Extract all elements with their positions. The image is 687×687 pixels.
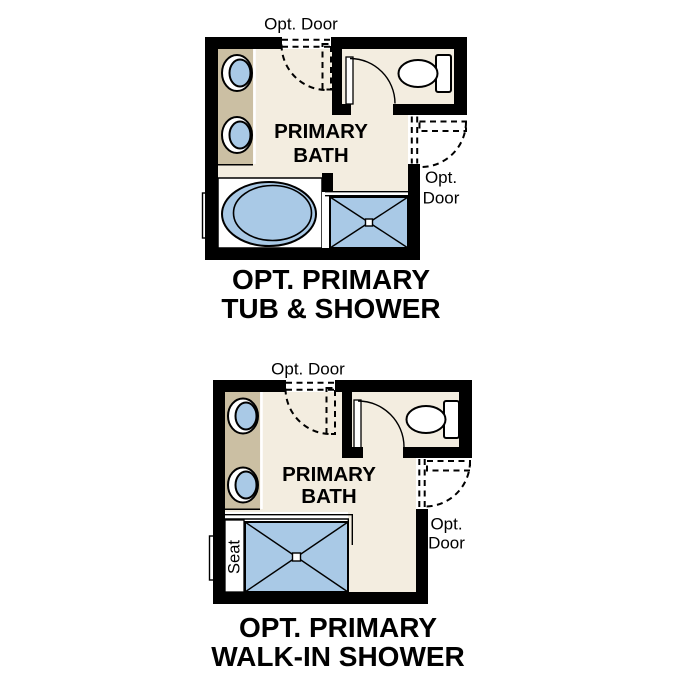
door-swing-arc-dashed <box>421 122 466 167</box>
plan-title-line2: TUB & SHOWER <box>221 293 440 324</box>
bathtub <box>218 178 322 248</box>
floor-plan-tub-shower: Opt. Door PRIMARY BATH Opt. Door OPT. PR… <box>203 15 468 325</box>
walk-in-shower-pan <box>225 512 352 592</box>
plan-title-line1: OPT. PRIMARY <box>232 264 430 295</box>
tub-basin <box>222 182 316 246</box>
door-panel <box>346 57 353 104</box>
plan-title-line1: OPT. PRIMARY <box>239 612 437 643</box>
opt-door-label-side-line2: Door <box>423 189 460 208</box>
door-panel-dashed <box>420 122 467 132</box>
room-label-line2: BATH <box>293 144 348 167</box>
opt-door-label-side-line1: Opt. <box>430 515 462 534</box>
sink-icon <box>228 399 258 434</box>
vanity-with-two-sinks <box>218 49 255 165</box>
sink-icon <box>228 468 258 503</box>
floor-plan-walk-in-shower: Opt. Door PRIMARY BATH Opt. Door Seat OP… <box>210 360 473 673</box>
opt-door-label-side-line2: Door <box>428 534 465 553</box>
door-swing-arc-dashed <box>425 462 470 507</box>
floor-plan-sheet: Opt. Door PRIMARY BATH Opt. Door OPT. PR… <box>0 0 687 687</box>
toilet-bowl <box>399 60 438 87</box>
door-panel-dashed <box>427 461 470 471</box>
room-label-line2: BATH <box>301 485 356 508</box>
seat-label: Seat <box>226 540 244 574</box>
optional-side-door <box>412 117 466 168</box>
door-panel <box>354 400 361 448</box>
shower-drain <box>293 553 301 561</box>
opt-door-label-side-line1: Opt. <box>425 168 457 187</box>
shower-pan <box>322 192 408 248</box>
opt-door-label-top: Opt. Door <box>271 360 345 379</box>
optional-side-door <box>419 459 470 508</box>
shower-drain <box>366 219 373 226</box>
room-label-line1: PRIMARY <box>274 120 368 143</box>
room-label-line1: PRIMARY <box>282 463 376 486</box>
opt-door-label-top: Opt. Door <box>264 15 338 34</box>
vanity-with-two-sinks <box>225 392 262 510</box>
sink-icon <box>222 117 252 153</box>
floor-plans-canvas: Opt. Door PRIMARY BATH Opt. Door OPT. PR… <box>0 0 687 687</box>
plan-title-line2: WALK-IN SHOWER <box>211 641 465 672</box>
toilet-bowl <box>407 406 446 433</box>
sink-icon <box>222 55 252 91</box>
